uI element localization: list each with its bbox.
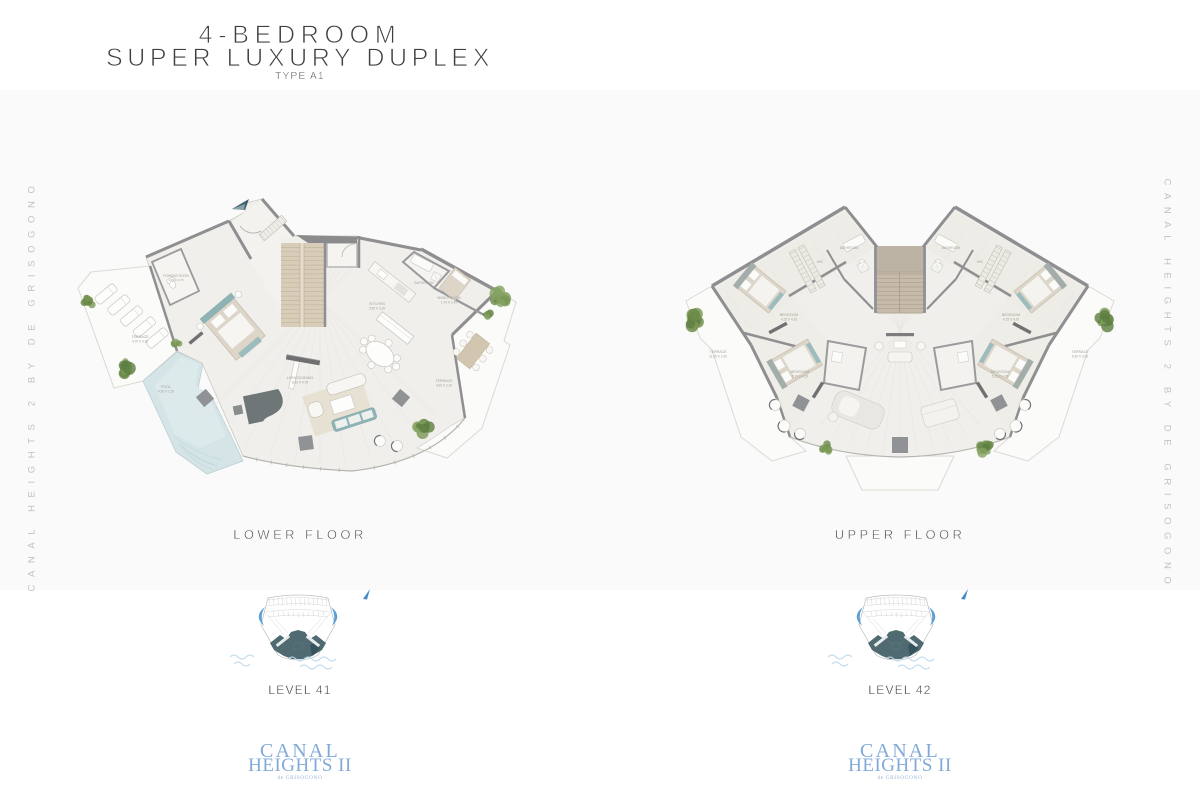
svg-text:BATHROOM: BATHROOM [414, 281, 434, 285]
svg-text:4.90 X 2.10: 4.90 X 2.10 [436, 384, 453, 388]
svg-text:BATHROOM: BATHROOM [942, 246, 961, 250]
svg-text:BATHROOM: BATHROOM [840, 246, 859, 250]
svg-text:POOL: POOL [161, 385, 171, 389]
svg-text:BEDROOM: BEDROOM [780, 313, 799, 317]
svg-text:WIC: WIC [977, 260, 984, 264]
svg-text:TERRACE: TERRACE [709, 350, 727, 354]
svg-text:11.95 X 2.30: 11.95 X 2.30 [709, 355, 727, 359]
svg-text:BEDROOM: BEDROOM [1002, 313, 1021, 317]
svg-text:BEDROOM: BEDROOM [791, 370, 810, 374]
svg-text:1.63 X 2.75: 1.63 X 2.75 [168, 278, 184, 282]
svg-text:BEDROOM: BEDROOM [991, 370, 1010, 374]
svg-text:TERRACE: TERRACE [131, 335, 149, 339]
svg-text:MAID'S ROOM: MAID'S ROOM [438, 296, 461, 300]
svg-text:4.15 X 4.20: 4.15 X 4.20 [781, 318, 798, 322]
svg-text:LIVING/DINING: LIVING/DINING [287, 376, 314, 380]
svg-text:5.15 X 4.25: 5.15 X 4.25 [792, 375, 809, 379]
svg-text:8.30 X 4.75: 8.30 X 4.75 [292, 381, 309, 385]
svg-text:3.55 X 3.20: 3.55 X 3.20 [369, 307, 386, 311]
svg-text:9.30 X 3.20: 9.30 X 3.20 [1072, 355, 1089, 359]
svg-text:5.15 X 4.25: 5.15 X 4.25 [992, 375, 1009, 379]
svg-text:TERRACE: TERRACE [1071, 350, 1089, 354]
svg-text:TERRACE: TERRACE [435, 379, 453, 383]
svg-text:4.30 X 2.30: 4.30 X 2.30 [158, 390, 175, 394]
svg-text:KITCHEN: KITCHEN [369, 302, 385, 306]
svg-text:1.70 X 2.40: 1.70 X 2.40 [441, 301, 458, 305]
svg-text:4.75 X 4.30: 4.75 X 4.30 [132, 340, 149, 344]
svg-text:4.15 X 4.20: 4.15 X 4.20 [1003, 318, 1020, 322]
svg-text:WIC: WIC [817, 260, 824, 264]
